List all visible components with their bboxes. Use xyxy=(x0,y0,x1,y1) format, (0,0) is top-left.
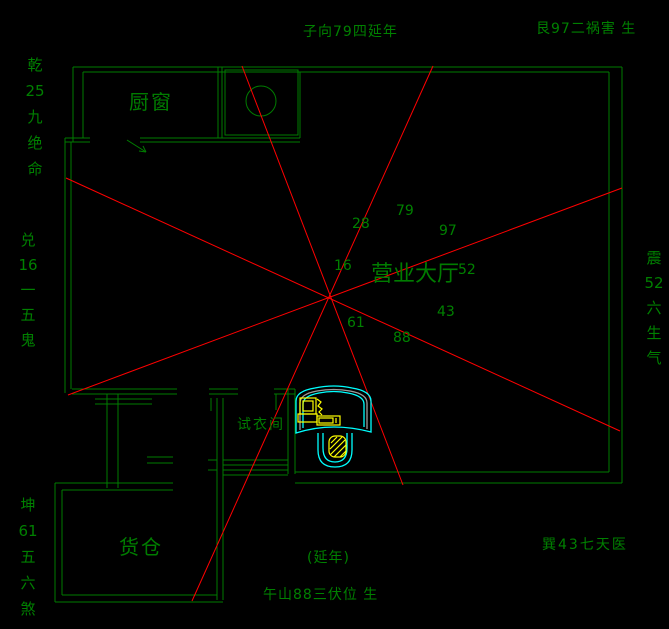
floor-plan-canvas: 子向79四延年 艮97二祸害 生 乾 25 九 绝 命 兑 16 一 五 鬼 坤… xyxy=(0,0,669,629)
compass-line-sw-ne xyxy=(68,188,622,395)
computer-base xyxy=(298,414,317,422)
compass-label-northwest: 乾 25 九 绝 命 xyxy=(20,52,50,182)
cable-icon xyxy=(317,399,322,415)
keyboard-keys xyxy=(319,418,333,423)
room-label-fitting-room: 试衣间 xyxy=(237,414,285,434)
compass-label-northeast: 艮97二祸害 生 xyxy=(536,21,636,37)
star-number-n: 79 xyxy=(396,203,414,219)
compass-line-w-e xyxy=(66,178,620,431)
compass-label-southwest: 坤 61 五 六 煞 xyxy=(13,492,43,622)
floor-plan-drawing xyxy=(0,0,669,629)
star-number-nw: 28 xyxy=(352,216,370,232)
compass-label-east: 震 52 六 生 气 xyxy=(639,246,669,371)
compass-label-north: 子向79四延年 xyxy=(303,24,398,40)
compass-label-southeast: 巽43七天医 xyxy=(542,537,628,553)
kitchen-counter xyxy=(225,70,298,135)
compass-label-west: 兑 16 一 五 鬼 xyxy=(13,228,43,353)
star-number-w: 16 xyxy=(334,258,352,274)
room-label-warehouse: 货仓 xyxy=(119,531,163,560)
star-number-e: 52 xyxy=(458,262,476,278)
room-label-hall: 营业大厅 xyxy=(371,256,459,288)
star-number-s: 88 xyxy=(393,330,411,346)
monitor-screen xyxy=(303,401,313,411)
sink-circle xyxy=(246,86,276,116)
compass-label-south: 午山88三伏位 生 xyxy=(263,587,378,603)
room-label-kitchen: 厨窗 xyxy=(129,86,173,115)
star-number-ne: 97 xyxy=(439,223,457,239)
star-number-sw: 61 xyxy=(347,315,365,331)
compass-note-south: (延年) xyxy=(307,550,350,566)
walls xyxy=(55,67,622,602)
star-number-se: 43 xyxy=(437,304,455,320)
compass-lines xyxy=(66,66,622,601)
desk-outline xyxy=(296,386,371,433)
